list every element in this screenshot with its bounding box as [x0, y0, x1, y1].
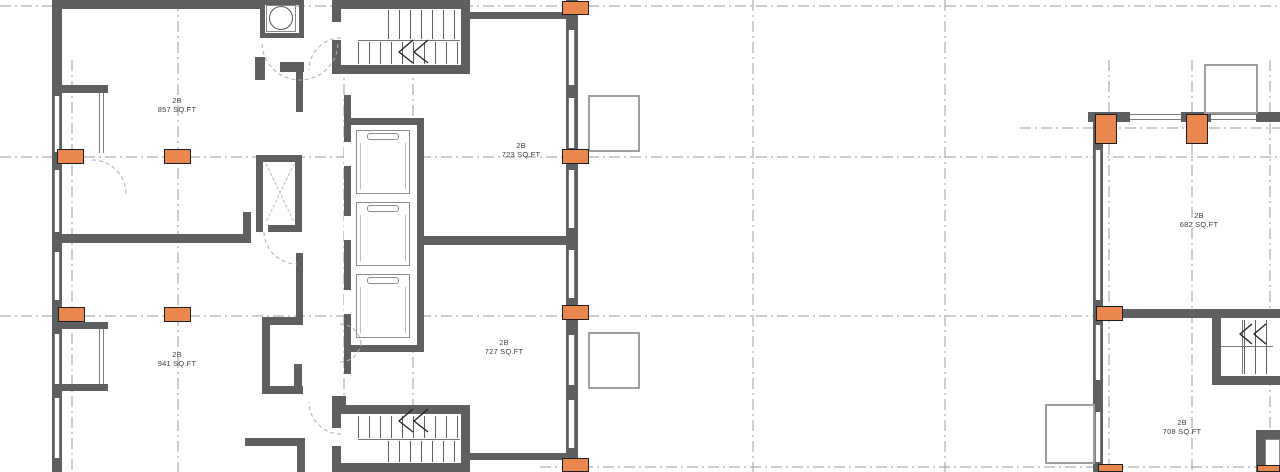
unit-area: 727 SQ.FT: [462, 347, 546, 356]
unit-area: 682 SQ.FT: [1157, 220, 1241, 229]
stair-direction-arrows: [399, 40, 1266, 432]
unit-type: 2B: [1140, 418, 1224, 427]
unit-type: 2B: [1157, 211, 1241, 220]
unit-label: 2B 682 SQ.FT: [1157, 211, 1241, 229]
unit-type: 2B: [135, 350, 219, 359]
unit-area: 708 SQ.FT: [1140, 427, 1224, 436]
annotation-overlay: [0, 0, 1280, 472]
unit-label: 2B 708 SQ.FT: [1140, 418, 1224, 436]
unit-type: 2B: [462, 338, 546, 347]
unit-area: 941 SQ.FT: [135, 359, 219, 368]
unit-label: 2B 941 SQ.FT: [135, 350, 219, 368]
unit-label: 2B 723 SQ.FT: [479, 141, 563, 159]
unit-type: 2B: [479, 141, 563, 150]
unit-label: 2B 727 SQ.FT: [462, 338, 546, 356]
unit-label: 2B 857 SQ.FT: [135, 96, 219, 114]
door-swing-arcs: [92, 38, 361, 434]
unit-type: 2B: [135, 96, 219, 105]
shaft-x-brace: [266, 164, 294, 222]
unit-area: 723 SQ.FT: [479, 150, 563, 159]
unit-area: 857 SQ.FT: [135, 105, 219, 114]
floor-plan-canvas: 2B 857 SQ.FT 2B 723 SQ.FT 2B 941 SQ.FT 2…: [0, 0, 1280, 472]
